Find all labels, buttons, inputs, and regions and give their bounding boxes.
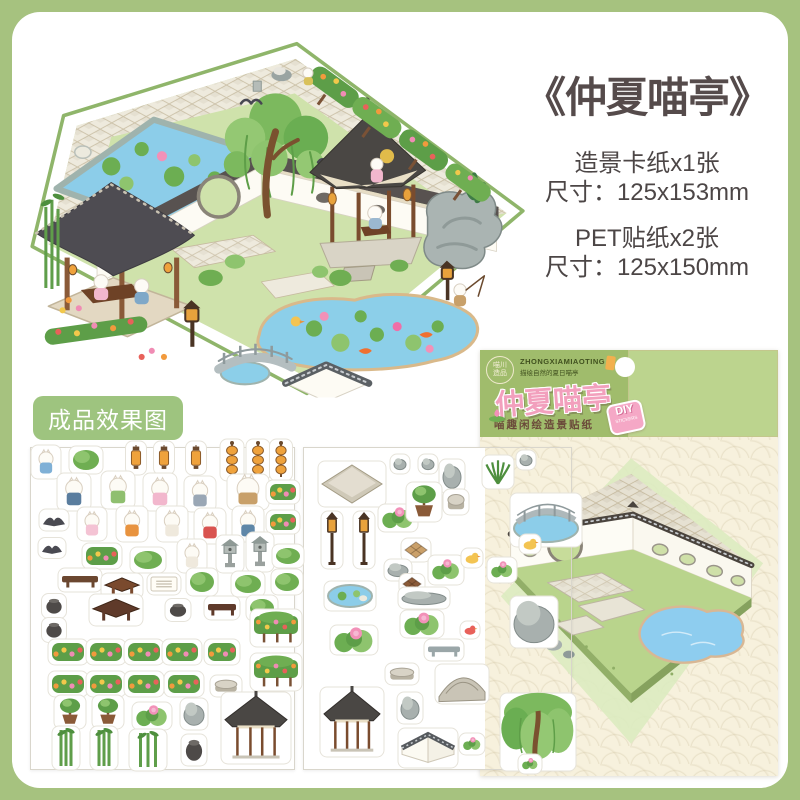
brand-pinyin: ZHONGXIAMIAOTING <box>520 357 605 366</box>
sheet2-backing <box>304 448 485 769</box>
lotus-icon <box>488 408 506 422</box>
brand-tagline: 描绘自然的夏日喵亭 <box>520 367 579 377</box>
effect-label: 成品效果图 <box>33 396 183 440</box>
product-title: 《仲夏喵亭》 <box>516 64 778 125</box>
package-subtitle: 喵趣闲绘造景贴纸 <box>494 417 594 432</box>
package-artwork <box>628 350 778 437</box>
spec-sticker-size: 尺寸：125x150mm <box>516 253 778 282</box>
garden-scene-illustration <box>20 34 532 398</box>
spec-sticker-count: PET贴纸x2张 <box>516 224 778 253</box>
hang-hole <box>615 357 635 377</box>
sticker-sheet-1 <box>30 447 295 770</box>
spec-card-size: 尺寸：125x153mm <box>516 178 778 207</box>
sticker-sheet-2 <box>303 447 572 770</box>
spec-card-count: 造景卡纸x1张 <box>516 149 778 178</box>
brand-stamp: 喵川 造品 <box>486 356 514 384</box>
product-info: 《仲夏喵亭》 造景卡纸x1张 尺寸：125x153mm PET贴纸x2张 尺寸：… <box>516 64 778 282</box>
